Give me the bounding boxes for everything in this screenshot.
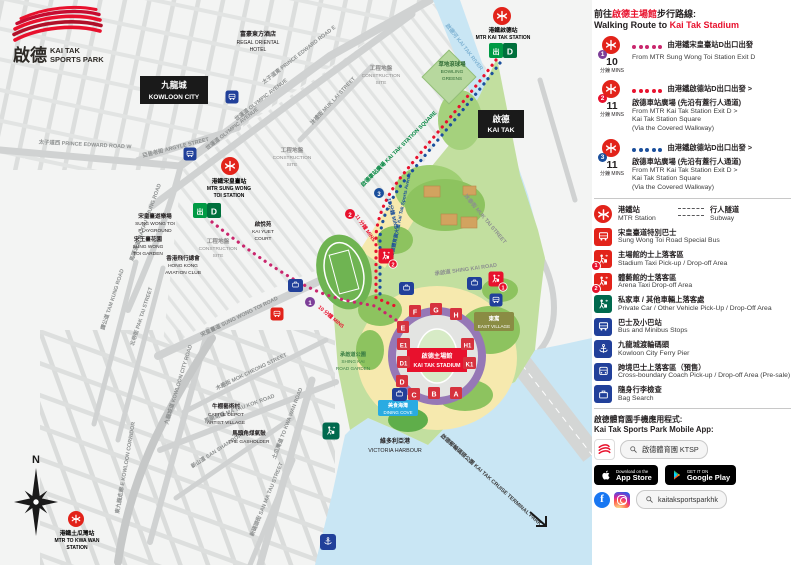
dining-cove-en: DINING COVE xyxy=(383,410,412,415)
legend-stadium-taxi: 1 主場館的士上落客區Stadium Taxi Pick-up / Drop-o… xyxy=(594,250,791,268)
svg-text:2: 2 xyxy=(391,263,394,269)
legend-private-car: 私家車 / 其他車輛上落客處Private Car / Other Vehicl… xyxy=(594,295,791,313)
special-bus-icon xyxy=(271,308,284,321)
gate-c: C xyxy=(411,393,416,400)
search-icon xyxy=(645,495,654,504)
cattle-depot-en1: CATTLE DEPOT xyxy=(208,412,244,418)
east-village-zh: 東寓 xyxy=(489,315,500,323)
stadium-taxi-icon: 1 xyxy=(594,250,612,268)
mobile-app-heading: 啟德體育園手機應用程式: Kai Tak Sports Park Mobile … xyxy=(594,415,791,435)
divider xyxy=(594,198,791,199)
construction-3-en2: SITE xyxy=(376,80,387,86)
kai-tak-label-en: KAI TAK xyxy=(487,127,514,134)
swt-playground-zh: 宋皇臺遊樂場 xyxy=(138,212,172,220)
cattle-depot-en2: ARTIST VILLAGE xyxy=(207,420,245,426)
route-2-number: 2 xyxy=(598,94,607,103)
victoria-harbour-en: VICTORIA HARBOUR xyxy=(368,448,422,454)
gasholder-en: THE GASHOLDER xyxy=(228,439,270,445)
social-search-pill[interactable]: kaitaksportsparkhk xyxy=(636,490,727,509)
search-icon xyxy=(629,445,638,454)
construction-3-en1: CONSTRUCTION xyxy=(362,73,401,79)
swt-exit-letter: D xyxy=(211,207,217,217)
aviation-club-en1: HONG KONG xyxy=(168,263,198,269)
kowloon-city-label-zh: 九龍城 xyxy=(160,80,187,90)
app-search-pill[interactable]: 啟德體育園 KTSP xyxy=(620,440,708,459)
aviation-club-zh: 香港飛行總會 xyxy=(166,254,200,262)
bag-search-icon xyxy=(594,385,612,403)
dining-cove: 美食海灣 DINING COVE xyxy=(378,400,418,416)
coach-icon xyxy=(594,363,612,381)
svg-text:1: 1 xyxy=(501,286,504,292)
gate-k1: K1 xyxy=(466,363,474,369)
legend-cross-boundary-coach: 跨境巴士上落客區（預售）Cross-boundary Coach Pick-up… xyxy=(594,363,791,381)
swt-garden-en1: SUNG WONG xyxy=(133,244,164,250)
ktsp-app-icon xyxy=(594,439,615,460)
shing-kai-garden-en2: ROAD GARDEN xyxy=(336,366,370,371)
district-kowloon-city: 九龍城 KOWLOON CITY xyxy=(140,76,208,104)
special-bus-icon xyxy=(594,228,612,246)
swt-station-zh: 港鐵宋皇臺站 xyxy=(212,177,247,185)
kai-yuet-court-en1: KAI YUET xyxy=(252,229,274,235)
gate-a: A xyxy=(453,392,458,399)
cattle-depot-zh: 牛棚藝術村 xyxy=(212,402,240,410)
kowloon-city-label-en: KOWLOON CITY xyxy=(149,94,200,101)
swt-playground-en1: SUNG WONG TOI xyxy=(135,221,175,227)
walking-route-1: 1 10 分鐘 MINS 由港鐵宋皇臺站D出口出發 From MTR Sung … xyxy=(594,36,791,74)
route-1-dots xyxy=(632,36,665,54)
legend-special-bus: 宋皇臺道特別巴士Sung Wong Toi Road Special Bus xyxy=(594,228,791,246)
bus-stop-icon xyxy=(184,148,197,161)
legend-arena-taxi: 2 體藝館的士落客區Arena Taxi Drop-off Area xyxy=(594,273,791,291)
kai-yuet-court-en2: COURT xyxy=(255,236,272,242)
gasholder-zh: 馬頭角煤氣鼓 xyxy=(231,429,266,437)
ktsp-logo-en1: KAI TAK xyxy=(50,46,80,55)
private-car-icon xyxy=(323,423,340,440)
swt-garden-en2: TOI GARDEN xyxy=(133,251,163,257)
stadium-label: 啟德主場館 KAI TAK STADIUM xyxy=(407,348,467,372)
gate-d1: D1 xyxy=(400,362,408,368)
construction-1-en1: CONSTRUCTION xyxy=(273,155,312,161)
kt-exit-zh: 出 xyxy=(493,47,500,56)
east-village-en: EAST VILLAGE xyxy=(478,324,510,329)
gate-h: H xyxy=(453,313,458,320)
swt-playground-en2: PLAYGROUND xyxy=(138,228,172,234)
regal-hotel-label-en1: REGAL ORIENTAL xyxy=(237,40,280,46)
mtr-icon: 3 xyxy=(602,139,622,159)
victoria-harbour-zh: 維多利亞港 xyxy=(380,437,411,445)
swt-exit-zh: 出 xyxy=(197,207,204,216)
aviation-club-en2: AVIATION CLUB xyxy=(165,270,201,276)
stadium-label-en: KAI TAK STADIUM xyxy=(413,363,461,369)
regal-hotel-label-zh: 富豪東方酒店 xyxy=(240,30,276,38)
kai-tak-label-zh: 啟德 xyxy=(492,114,510,124)
kt-exit-letter: D xyxy=(507,47,513,57)
bowling-greens-zh: 草地滾球場 xyxy=(439,60,467,68)
facebook-icon[interactable]: f xyxy=(594,492,610,508)
swt-garden-zh: 宋王臺花園 xyxy=(134,235,162,243)
route-3-number: 3 xyxy=(598,153,607,162)
ferry-icon xyxy=(594,340,612,358)
swt-exit-d-badge: 出 D xyxy=(193,203,221,218)
bag-search-icon xyxy=(399,282,414,295)
private-car-icon xyxy=(594,295,612,313)
tkw-station-en2: STATION xyxy=(66,545,88,551)
gate-b: B xyxy=(431,392,436,399)
google-play-icon xyxy=(671,469,683,481)
bus-icon xyxy=(594,318,612,336)
construction-3-zh: 工程地盤 xyxy=(370,64,393,72)
bowling-greens-en1: BOWLING xyxy=(441,69,464,75)
legend-bag-search: 隨身行李檢查Bag Search xyxy=(594,385,791,403)
east-village: 東寓 EAST VILLAGE xyxy=(474,312,514,331)
stadium-label-zh: 啟德主場館 xyxy=(422,352,453,360)
shing-kai-garden-zh: 承啟道公園 xyxy=(340,350,366,358)
tkw-station-zh: 港鐵土瓜灣站 xyxy=(60,529,95,537)
panel-title: 前往啟德主場館步行路線: Walking Route to Kai Tak St… xyxy=(594,9,791,31)
route-2-minutes: 11 xyxy=(594,101,630,112)
compass-n: N xyxy=(32,454,40,466)
dining-cove-zh: 美食海灣 xyxy=(388,402,408,409)
route-3-minutes: 11 xyxy=(594,160,630,171)
construction-2-en2: SITE xyxy=(213,253,224,259)
legend-bus-minibus: 巴士及小巴站Bus and Minibus Stops xyxy=(594,318,791,336)
route-1-number: 1 xyxy=(598,50,607,59)
google-play-badge[interactable]: GET IT ONGoogle Play xyxy=(665,465,736,485)
construction-1-en2: SITE xyxy=(287,162,298,168)
bus-stop-icon xyxy=(226,91,239,104)
kai-tak-sports-park-map: 九龍城 KOWLOON CITY 啟德 KAI TAK 太子道西 PRINCE … xyxy=(0,0,592,565)
bag-search-icon xyxy=(392,388,407,401)
kt-station-en: MTR KAI TAK STATION xyxy=(476,35,531,41)
arena-taxi-icon: 2 xyxy=(594,273,612,291)
regal-hotel-label-en2: HOTEL xyxy=(250,47,267,53)
construction-1-zh: 工程地盤 xyxy=(281,146,304,154)
bus-stop-icon xyxy=(490,294,503,307)
kai-yuet-court-zh: 啟悅苑 xyxy=(255,220,272,228)
route-3-dots xyxy=(632,139,665,157)
subway-dash-icon xyxy=(678,208,704,223)
route-2-dots xyxy=(632,80,665,98)
route-1-minutes: 10 xyxy=(594,57,630,68)
gate-d: D xyxy=(399,380,404,387)
mtr-icon: 1 xyxy=(602,36,622,56)
swt-station-en2: TOI STATION xyxy=(214,193,245,199)
route-legend-panel: 前往啟德主場館步行路線: Walking Route to Kai Tak St… xyxy=(592,0,799,565)
kt-station-zh: 港鐵啟德站 xyxy=(489,26,518,34)
construction-2-zh: 工程地盤 xyxy=(207,237,230,245)
legend-ferry-pier: 九龍城渡輪碼頭Kowloon City Ferry Pier xyxy=(594,340,791,358)
shing-kai-garden-en1: SHING KAI xyxy=(341,359,364,364)
walking-route-3: 3 11 分鐘 MINS 由港鐵啟德站D出口出發 > 啟德車站廣場 (先沿有蓋行… xyxy=(594,139,791,192)
gate-h1: H1 xyxy=(464,344,472,350)
bag-search-icon xyxy=(288,279,303,292)
apple-icon xyxy=(600,469,612,481)
ferry-pier-icon xyxy=(320,534,336,550)
gate-f: F xyxy=(413,310,418,317)
bowling-greens-en2: GREENS xyxy=(442,76,462,82)
swt-station-en1: MTR SUNG WONG xyxy=(207,186,251,192)
gate-e1: E1 xyxy=(400,344,408,350)
construction-2-en1: CONSTRUCTION xyxy=(199,246,238,252)
ktsp-logo-zh: 啟德 xyxy=(13,45,47,65)
tkw-station-en1: MTR TO KWA WAN xyxy=(55,538,100,544)
ktsp-logo-en2: SPORTS PARK xyxy=(50,55,104,64)
mtr-icon xyxy=(594,205,612,223)
walking-route-2: 2 11 分鐘 MINS 由港鐵啟德站D出口出發 > 啟德車站廣場 (先沿有蓋行… xyxy=(594,80,791,133)
divider xyxy=(594,408,791,409)
gate-e: E xyxy=(401,326,406,333)
kt-exit-d-badge: 出 D xyxy=(489,43,517,58)
bag-search-icon xyxy=(467,277,482,290)
mtr-icon: 2 xyxy=(602,80,622,100)
legend-mtr-subway: 港鐵站 MTR Station 行人隧道 Subway xyxy=(594,205,791,223)
gate-g: G xyxy=(433,308,439,315)
instagram-icon[interactable] xyxy=(614,492,630,508)
app-store-badge[interactable]: Download on theApp Store xyxy=(594,465,658,485)
district-kai-tak: 啟德 KAI TAK xyxy=(478,110,524,138)
